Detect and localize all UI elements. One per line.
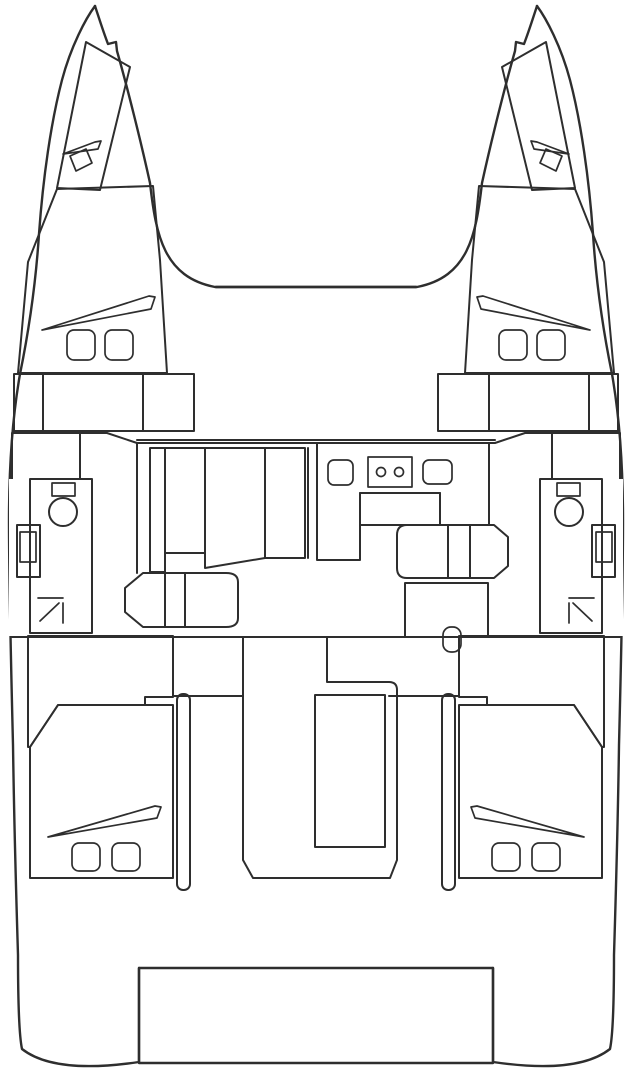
aft-cabin-area xyxy=(30,705,173,878)
forward-cabin-pillow-icon xyxy=(105,330,133,360)
aft-cabin-pillow-icon xyxy=(112,843,140,871)
dinette-divider-lines xyxy=(165,448,308,558)
galley-counter-block xyxy=(360,493,440,525)
stove-burner-icon xyxy=(395,468,404,477)
port-hull-rooms xyxy=(9,42,194,890)
starboard-hull-shell-mirror xyxy=(216,6,623,1066)
deck-plan-canvas xyxy=(0,0,632,1080)
cockpit-table xyxy=(315,695,385,847)
galley-island xyxy=(397,525,508,578)
catamaran-floor-plan xyxy=(0,0,632,1080)
hull-inner-edge-and-foredeck-curve xyxy=(95,6,416,287)
saloon-interior xyxy=(125,443,508,652)
forward-cabin-pillow-icon xyxy=(67,330,95,360)
galley-island-divider-lines xyxy=(448,525,470,578)
starboard-hull-rooms-mirror xyxy=(438,42,623,890)
chaise-divider-lines xyxy=(165,573,185,627)
aft-cabin-window-icon xyxy=(48,806,161,837)
dinette-table-and-seats xyxy=(150,448,305,572)
forward-cabin-window-icon xyxy=(42,296,155,330)
cockpit-passage-area xyxy=(243,637,397,878)
cockpit-and-stern xyxy=(139,637,493,1063)
galley-sink-icon xyxy=(328,460,353,485)
aft-berth-strip xyxy=(28,636,173,747)
swim-platform xyxy=(139,968,493,1063)
port-hull-shell xyxy=(9,6,416,1066)
davit-bar xyxy=(177,694,190,890)
aft-cabin-pillow-icon xyxy=(72,843,100,871)
forepeak-window-icon xyxy=(63,141,101,154)
stove-burner-icon xyxy=(377,468,386,477)
berth-step-inboard xyxy=(143,374,194,431)
stove-icon xyxy=(368,457,412,487)
toilet-tank-icon xyxy=(52,483,75,496)
berth-step-middle xyxy=(43,374,143,431)
galley-basin-icon xyxy=(423,460,452,484)
chaise-seat xyxy=(125,573,238,627)
shower-corner-icon xyxy=(38,598,63,623)
toilet-bowl-icon xyxy=(49,498,77,526)
